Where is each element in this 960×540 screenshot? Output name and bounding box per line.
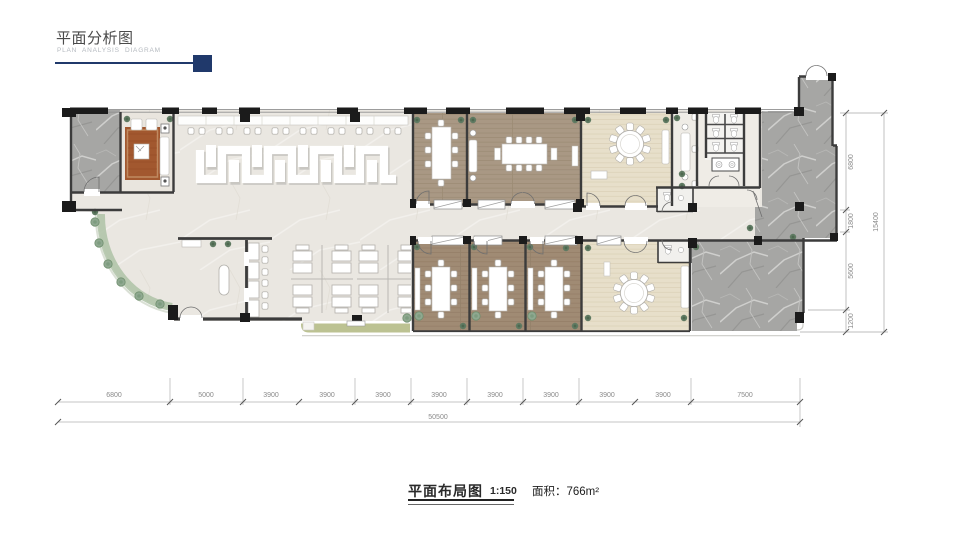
svg-text:6800: 6800	[106, 392, 122, 399]
svg-text:7500: 7500	[737, 392, 753, 399]
svg-text:15400: 15400	[873, 212, 880, 232]
svg-text:3900: 3900	[431, 392, 447, 399]
svg-text:50500: 50500	[428, 414, 448, 421]
svg-text:1200: 1200	[848, 313, 855, 329]
svg-text:5600: 5600	[848, 263, 855, 279]
svg-text:5000: 5000	[198, 392, 214, 399]
svg-text:3900: 3900	[599, 392, 615, 399]
svg-text:3900: 3900	[263, 392, 279, 399]
svg-text:3900: 3900	[543, 392, 559, 399]
svg-text:3900: 3900	[375, 392, 391, 399]
svg-text:3900: 3900	[487, 392, 503, 399]
svg-text:6800: 6800	[848, 154, 855, 170]
svg-text:1800: 1800	[848, 213, 855, 229]
svg-text:3900: 3900	[655, 392, 671, 399]
svg-text:3900: 3900	[319, 392, 335, 399]
